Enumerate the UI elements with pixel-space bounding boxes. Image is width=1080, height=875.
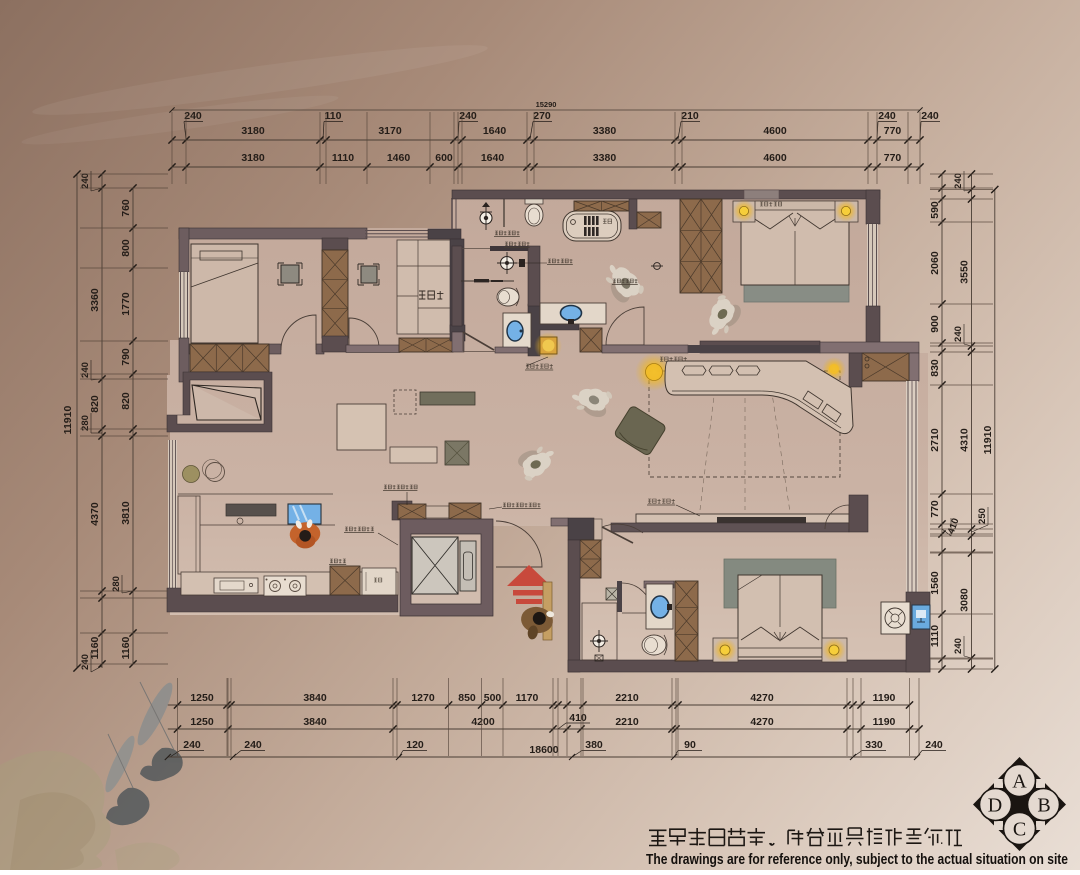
svg-text:820: 820	[120, 392, 132, 410]
svg-text:2060: 2060	[929, 251, 941, 275]
svg-text:1110: 1110	[332, 152, 354, 164]
svg-text:3380: 3380	[593, 125, 617, 137]
svg-text:2210: 2210	[615, 716, 639, 728]
svg-text:790: 790	[120, 348, 132, 366]
svg-text:1190: 1190	[873, 716, 896, 728]
svg-text:500: 500	[484, 692, 502, 704]
svg-text:1560: 1560	[929, 571, 941, 595]
svg-text:760: 760	[120, 199, 132, 217]
svg-text:11910: 11910	[62, 406, 74, 435]
svg-text:240: 240	[80, 654, 91, 670]
svg-text:2710: 2710	[929, 428, 941, 452]
svg-text:3840: 3840	[303, 692, 327, 704]
svg-text:1770: 1770	[120, 292, 132, 316]
svg-text:11910: 11910	[982, 426, 994, 455]
svg-text:90: 90	[684, 739, 696, 751]
svg-text:280: 280	[80, 415, 91, 431]
svg-text:4200: 4200	[471, 716, 495, 728]
svg-text:4370: 4370	[89, 502, 101, 526]
svg-text:240: 240	[953, 638, 964, 654]
svg-text:3180: 3180	[241, 125, 265, 137]
svg-text:4270: 4270	[750, 716, 774, 728]
svg-text:1110: 1110	[929, 625, 941, 647]
svg-text:380: 380	[585, 739, 603, 751]
svg-text:18600: 18600	[529, 744, 558, 756]
svg-text:250: 250	[977, 508, 988, 524]
svg-text:3170: 3170	[378, 125, 402, 137]
svg-text:3550: 3550	[959, 260, 971, 284]
svg-text:15290: 15290	[536, 100, 557, 109]
svg-text:B: B	[1037, 795, 1050, 817]
svg-text:240: 240	[953, 326, 964, 342]
svg-text:A: A	[1012, 771, 1027, 793]
svg-text:240: 240	[183, 739, 201, 751]
svg-text:3380: 3380	[593, 152, 617, 164]
svg-text:The drawings are for reference: The drawings are for reference only, sub…	[646, 852, 1068, 868]
svg-text:210: 210	[681, 110, 699, 122]
svg-text:240: 240	[921, 110, 939, 122]
svg-text:1170: 1170	[516, 692, 539, 704]
svg-text:3180: 3180	[241, 152, 265, 164]
svg-text:330: 330	[865, 739, 883, 751]
svg-text:1270: 1270	[411, 692, 435, 704]
svg-text:4600: 4600	[763, 125, 787, 137]
svg-text:1250: 1250	[190, 692, 214, 704]
svg-text:240: 240	[953, 173, 964, 189]
svg-text:800: 800	[120, 239, 132, 257]
svg-text:240: 240	[925, 739, 943, 751]
svg-text:3840: 3840	[303, 716, 327, 728]
svg-text:240: 240	[80, 173, 91, 189]
svg-text:C: C	[1013, 819, 1026, 841]
svg-text:900: 900	[929, 315, 941, 333]
svg-text:3080: 3080	[959, 588, 971, 612]
svg-text:D: D	[988, 795, 1002, 817]
svg-text:4310: 4310	[959, 428, 971, 452]
svg-text:280: 280	[111, 576, 122, 592]
svg-text:410: 410	[569, 712, 587, 724]
svg-text:1640: 1640	[483, 125, 507, 137]
svg-text:3360: 3360	[89, 288, 101, 312]
svg-text:240: 240	[184, 110, 202, 122]
svg-text:3810: 3810	[120, 501, 132, 525]
svg-text:4600: 4600	[763, 152, 787, 164]
svg-text:240: 240	[244, 739, 262, 751]
svg-text:770: 770	[884, 152, 902, 164]
svg-text:270: 270	[533, 110, 551, 122]
svg-text:1160: 1160	[120, 636, 132, 659]
svg-text:110: 110	[325, 110, 342, 122]
svg-text:770: 770	[929, 500, 941, 518]
svg-text:240: 240	[878, 110, 896, 122]
svg-text:850: 850	[458, 692, 476, 704]
svg-text:820: 820	[89, 395, 101, 413]
svg-text:2210: 2210	[615, 692, 639, 704]
svg-text:1190: 1190	[873, 692, 896, 704]
svg-text:1250: 1250	[190, 716, 214, 728]
svg-text:4270: 4270	[750, 692, 774, 704]
svg-text:600: 600	[435, 152, 453, 164]
svg-text:1640: 1640	[481, 152, 505, 164]
svg-text:240: 240	[80, 362, 91, 378]
svg-text:1460: 1460	[387, 152, 411, 164]
svg-text:770: 770	[884, 125, 902, 137]
svg-text:830: 830	[929, 359, 941, 377]
svg-text:120: 120	[406, 739, 424, 751]
svg-text:590: 590	[929, 201, 941, 219]
